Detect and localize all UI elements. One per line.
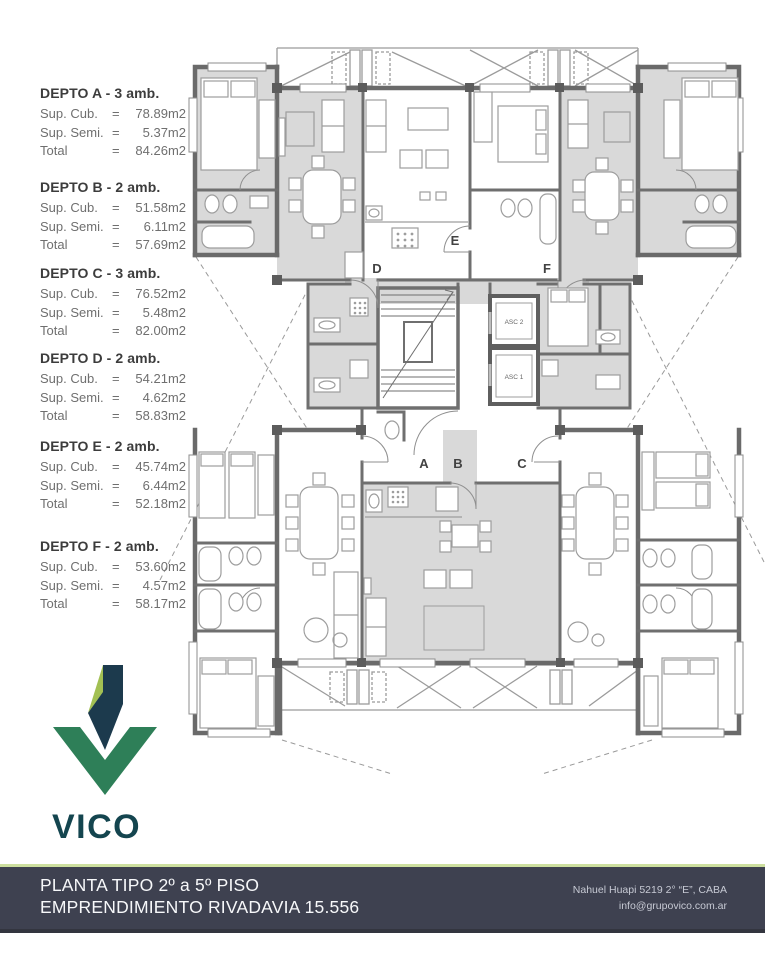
unit-label-e: E [451,233,460,248]
address-line: Nahuel Huapi 5219 2° “E”, CABA [573,883,727,899]
footer-address: Nahuel Huapi 5219 2° “E”, CABA info@grup… [573,883,727,914]
apartment-info-d: DEPTO D - 2 amb. Sup. Cub.=54.21m2 Sup. … [40,350,210,426]
page: { "sidebar": { "equals": "=", "apartment… [0,0,765,980]
apartment-row: Sup. Cub.=53.60m2 [40,558,210,577]
apartment-row: Sup. Semi.=4.62m2 [40,389,210,408]
apartment-info-e: DEPTO E - 2 amb. Sup. Cub.=45.74m2 Sup. … [40,438,210,514]
apartment-row: Total=82.00m2 [40,322,210,341]
apartment-title: DEPTO C - 3 amb. [40,265,210,281]
apartment-row: Sup. Semi.=5.37m2 [40,124,210,143]
apartment-row: Sup. Semi.=4.57m2 [40,577,210,596]
apartment-row: Sup. Cub.=78.89m2 [40,105,210,124]
apartment-row: Sup. Cub.=76.52m2 [40,285,210,304]
apartment-row: Sup. Semi.=5.48m2 [40,304,210,323]
unit-label-f: F [543,261,551,276]
unit-label-c: C [517,456,527,471]
apartment-info-f: DEPTO F - 2 amb. Sup. Cub.=53.60m2 Sup. … [40,538,210,614]
apartment-title: DEPTO B - 2 amb. [40,179,210,195]
apartment-info-c: DEPTO C - 3 amb. Sup. Cub.=76.52m2 Sup. … [40,265,210,341]
unit-label-a: A [419,456,429,471]
unit-label-b: B [453,456,462,471]
project-title: EMPRENDIMIENTO RIVADAVIA 15.556 [40,897,359,919]
apartment-row: Sup. Cub.=45.74m2 [40,458,210,477]
vico-logo: VICO [50,652,180,807]
elevators: ASC 2 ASC 1 [490,296,538,404]
vico-logo-wordmark: VICO [52,808,141,847]
apartment-info-b: DEPTO B - 2 amb. Sup. Cub.=51.58m2 Sup. … [40,179,210,255]
email-line: info@grupovico.com.ar [573,899,727,915]
apartment-row: Total=58.83m2 [40,407,210,426]
elevator-1-label: ASC 1 [505,374,524,381]
elevator-2-label: ASC 2 [505,319,524,326]
apartment-row: Sup. Semi.=6.44m2 [40,477,210,496]
vico-logo-mark [50,652,180,802]
apartment-row: Total=57.69m2 [40,236,210,255]
unit-label-d: D [372,261,381,276]
footer-bar: PLANTA TIPO 2º a 5º PISO EMPRENDIMIENTO … [0,867,765,933]
apartment-row: Total=58.17m2 [40,595,210,614]
apartment-title: DEPTO F - 2 amb. [40,538,210,554]
apartment-row: Total=84.26m2 [40,142,210,161]
apartment-title: DEPTO A - 3 amb. [40,85,210,101]
plan-title: PLANTA TIPO 2º a 5º PISO [40,875,359,897]
apartment-title: DEPTO E - 2 amb. [40,438,210,454]
apartment-row: Sup. Semi.=6.11m2 [40,218,210,237]
apartment-row: Sup. Cub.=51.58m2 [40,199,210,218]
apartment-row: Total=52.18m2 [40,495,210,514]
apartment-title: DEPTO D - 2 amb. [40,350,210,366]
footer-titles: PLANTA TIPO 2º a 5º PISO EMPRENDIMIENTO … [40,875,359,918]
apartment-info-a: DEPTO A - 3 amb. Sup. Cub.=78.89m2 Sup. … [40,85,210,161]
apartment-row: Sup. Cub.=54.21m2 [40,370,210,389]
stairwell [378,288,458,408]
